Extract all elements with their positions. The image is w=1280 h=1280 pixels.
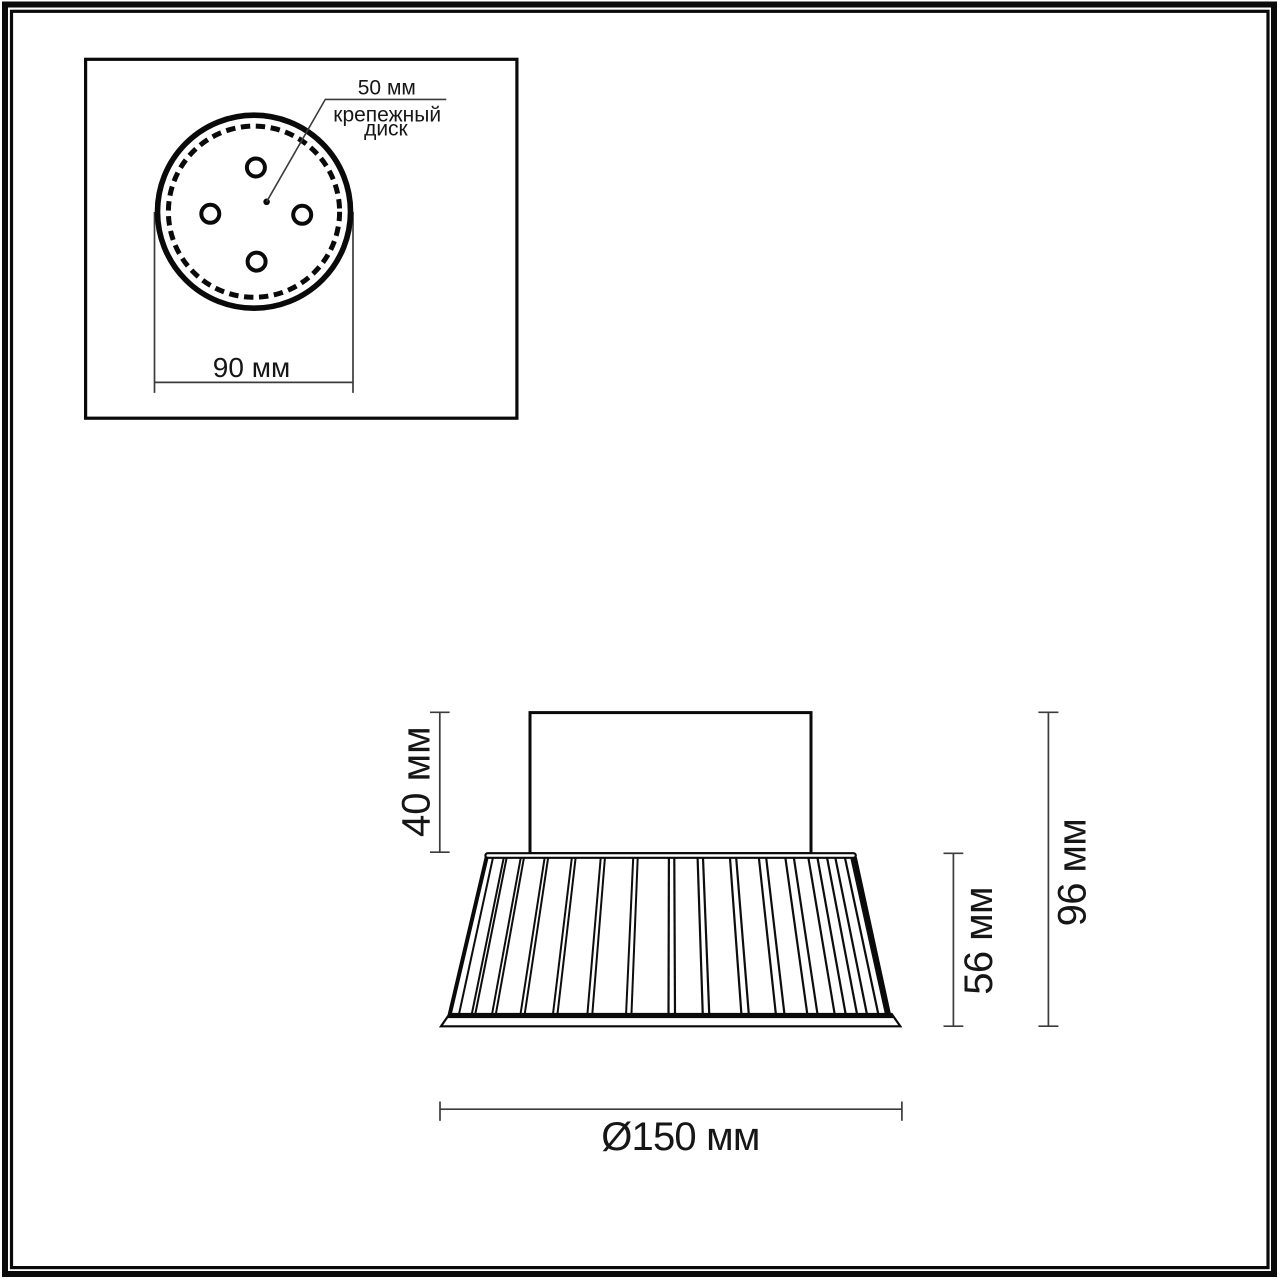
svg-text:Ø150 мм: Ø150 мм [601, 1115, 759, 1159]
svg-text:56 мм: 56 мм [957, 887, 1001, 995]
svg-text:диск: диск [364, 117, 408, 140]
svg-text:50 мм: 50 мм [358, 77, 416, 100]
svg-text:40 мм: 40 мм [395, 726, 439, 837]
svg-text:96 мм: 96 мм [1051, 819, 1095, 927]
svg-text:90 мм: 90 мм [213, 352, 290, 383]
